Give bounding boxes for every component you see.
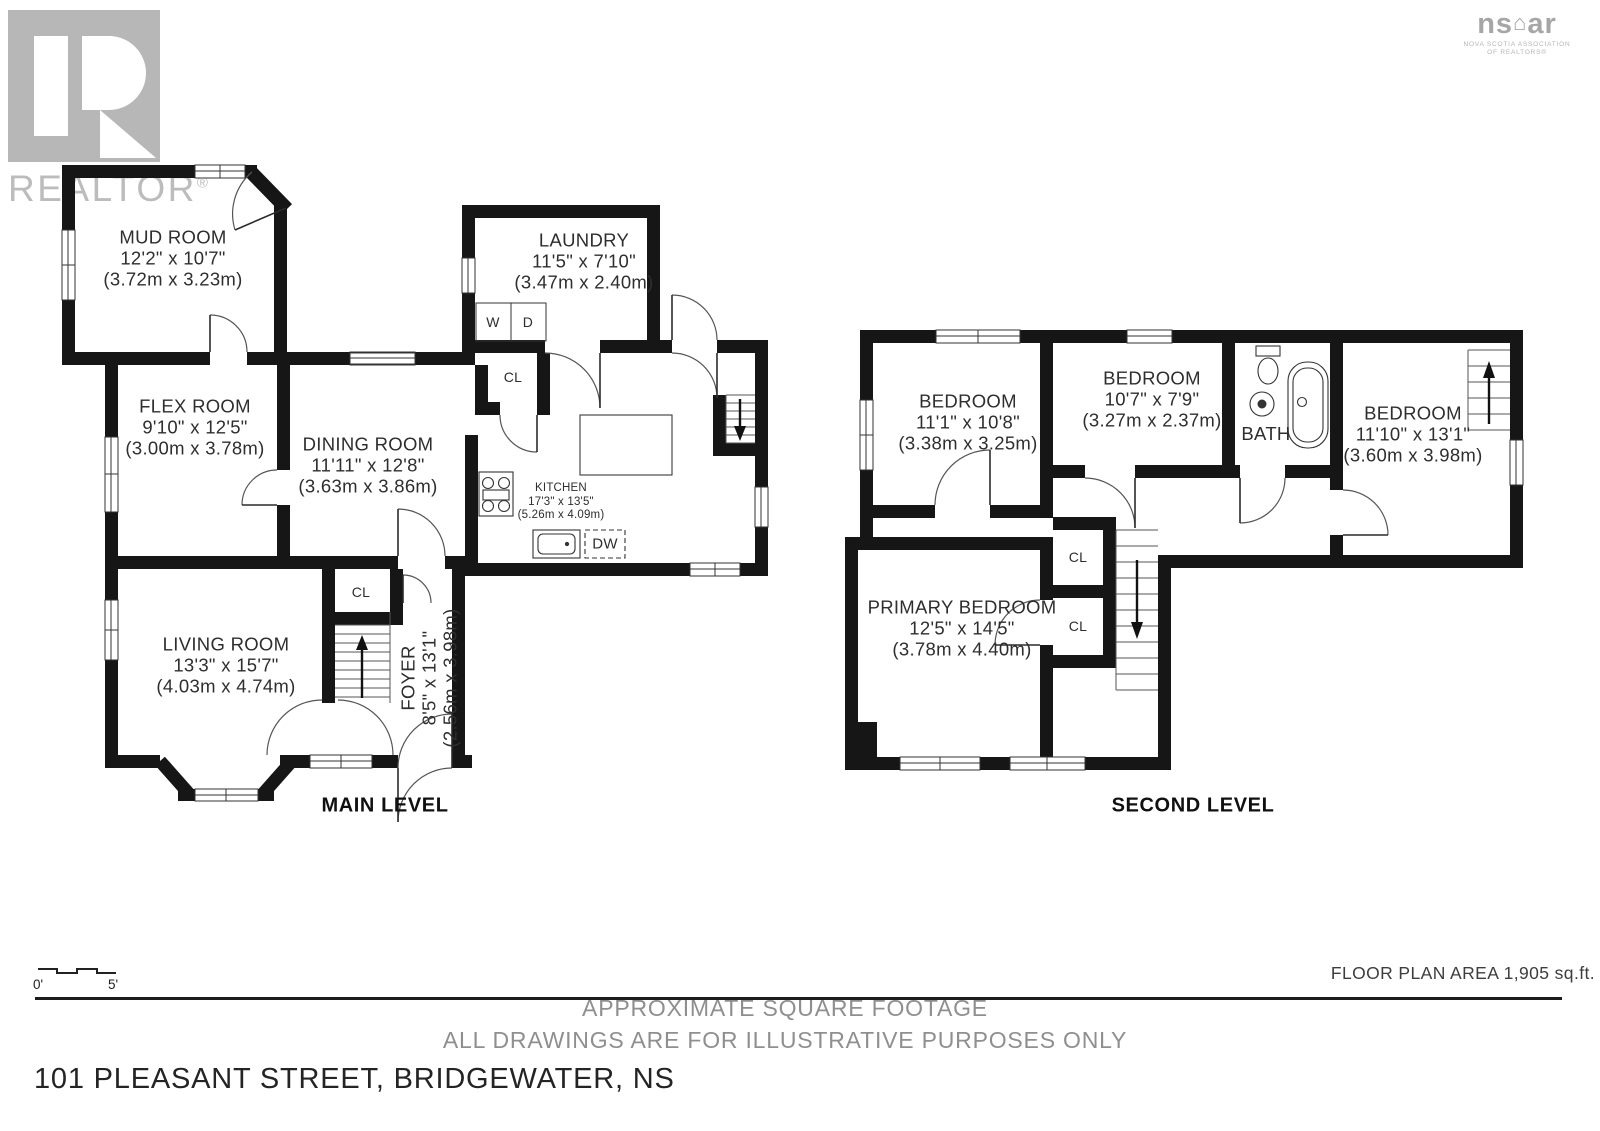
cased-opening: [350, 352, 415, 365]
second-level-title: SECOND LEVEL: [1112, 795, 1275, 818]
room-label-flex-room: FLEX ROOM 9'10" x 12'5" (3.00m x 3.78m): [125, 396, 264, 459]
disclaimer-text: APPROXIMATE SQUARE FOOTAGE ALL DRAWINGS …: [0, 992, 1570, 1056]
property-address: 101 PLEASANT STREET, BRIDGEWATER, NS: [34, 1063, 675, 1096]
room-label-bedroom-2: BEDROOM 10'7" x 7'9" (3.27m x 2.37m): [1082, 368, 1221, 431]
washer-label: W: [486, 314, 500, 330]
scale-start-label: 0': [33, 977, 43, 992]
toilet-icon: [1256, 346, 1280, 384]
floor-plan-page: REALTOR® ns⌂ar NOVA SCOTIA ASSOCIATION O…: [0, 0, 1600, 1131]
closet-label-hall: CL: [504, 369, 523, 385]
foyer-stairs-icon: [335, 612, 390, 703]
room-label-bath: BATH: [1241, 423, 1290, 445]
closet-label-foyer: CL: [352, 584, 371, 600]
stove-icon: [479, 472, 513, 516]
main-level-title: MAIN LEVEL: [321, 795, 448, 818]
closet-label-upper-1: CL: [1069, 549, 1088, 565]
room-label-bedroom-1: BEDROOM 11'1" x 10'8" (3.38m x 3.25m): [898, 391, 1037, 454]
room-label-living-room: LIVING ROOM 13'3" x 15'7" (4.03m x 4.74m…: [156, 634, 295, 697]
kitchen-island: [580, 415, 672, 475]
dryer-label: D: [523, 314, 533, 330]
room-label-mud-room: MUD ROOM 12'2" x 10'7" (3.72m x 3.23m): [103, 227, 242, 290]
room-label-laundry: LAUNDRY 11'5" x 7'10" (3.47m x 2.40m): [514, 230, 653, 293]
bathroom-sink-icon: [1250, 392, 1274, 416]
room-label-foyer: FOYER 8'5" x 13'1" (2.56m x 3.98m): [398, 608, 461, 747]
disclaimer-line-2: ALL DRAWINGS ARE FOR ILLUSTRATIVE PURPOS…: [0, 1024, 1570, 1056]
room-label-dining-room: DINING ROOM 11'11" x 12'8" (3.63m x 3.86…: [298, 434, 437, 497]
disclaimer-line-1: APPROXIMATE SQUARE FOOTAGE: [0, 992, 1570, 1024]
closet-label-upper-2: CL: [1069, 618, 1088, 634]
scale-bar: [38, 969, 116, 973]
room-label-kitchen: KITCHEN 17'3" x 13'5" (5.26m x 4.09m): [518, 482, 605, 523]
dishwasher-label: DW: [592, 536, 618, 553]
floor-plan-drawing: [0, 0, 1600, 1131]
kitchen-sink-icon: [533, 530, 580, 558]
scale-end-label: 5': [108, 977, 118, 992]
room-label-primary-bedroom: PRIMARY BEDROOM 12'5" x 14'5" (3.78m x 4…: [868, 597, 1057, 660]
room-label-bedroom-3: BEDROOM 11'10" x 13'1" (3.60m x 3.98m): [1343, 403, 1482, 466]
floor-plan-area-note: FLOOR PLAN AREA 1,905 sq.ft.: [1331, 963, 1595, 984]
kitchen-stairs-icon: [726, 395, 755, 443]
bathtub-icon: [1288, 362, 1328, 448]
upper-stairs-down-icon: [1116, 530, 1158, 690]
